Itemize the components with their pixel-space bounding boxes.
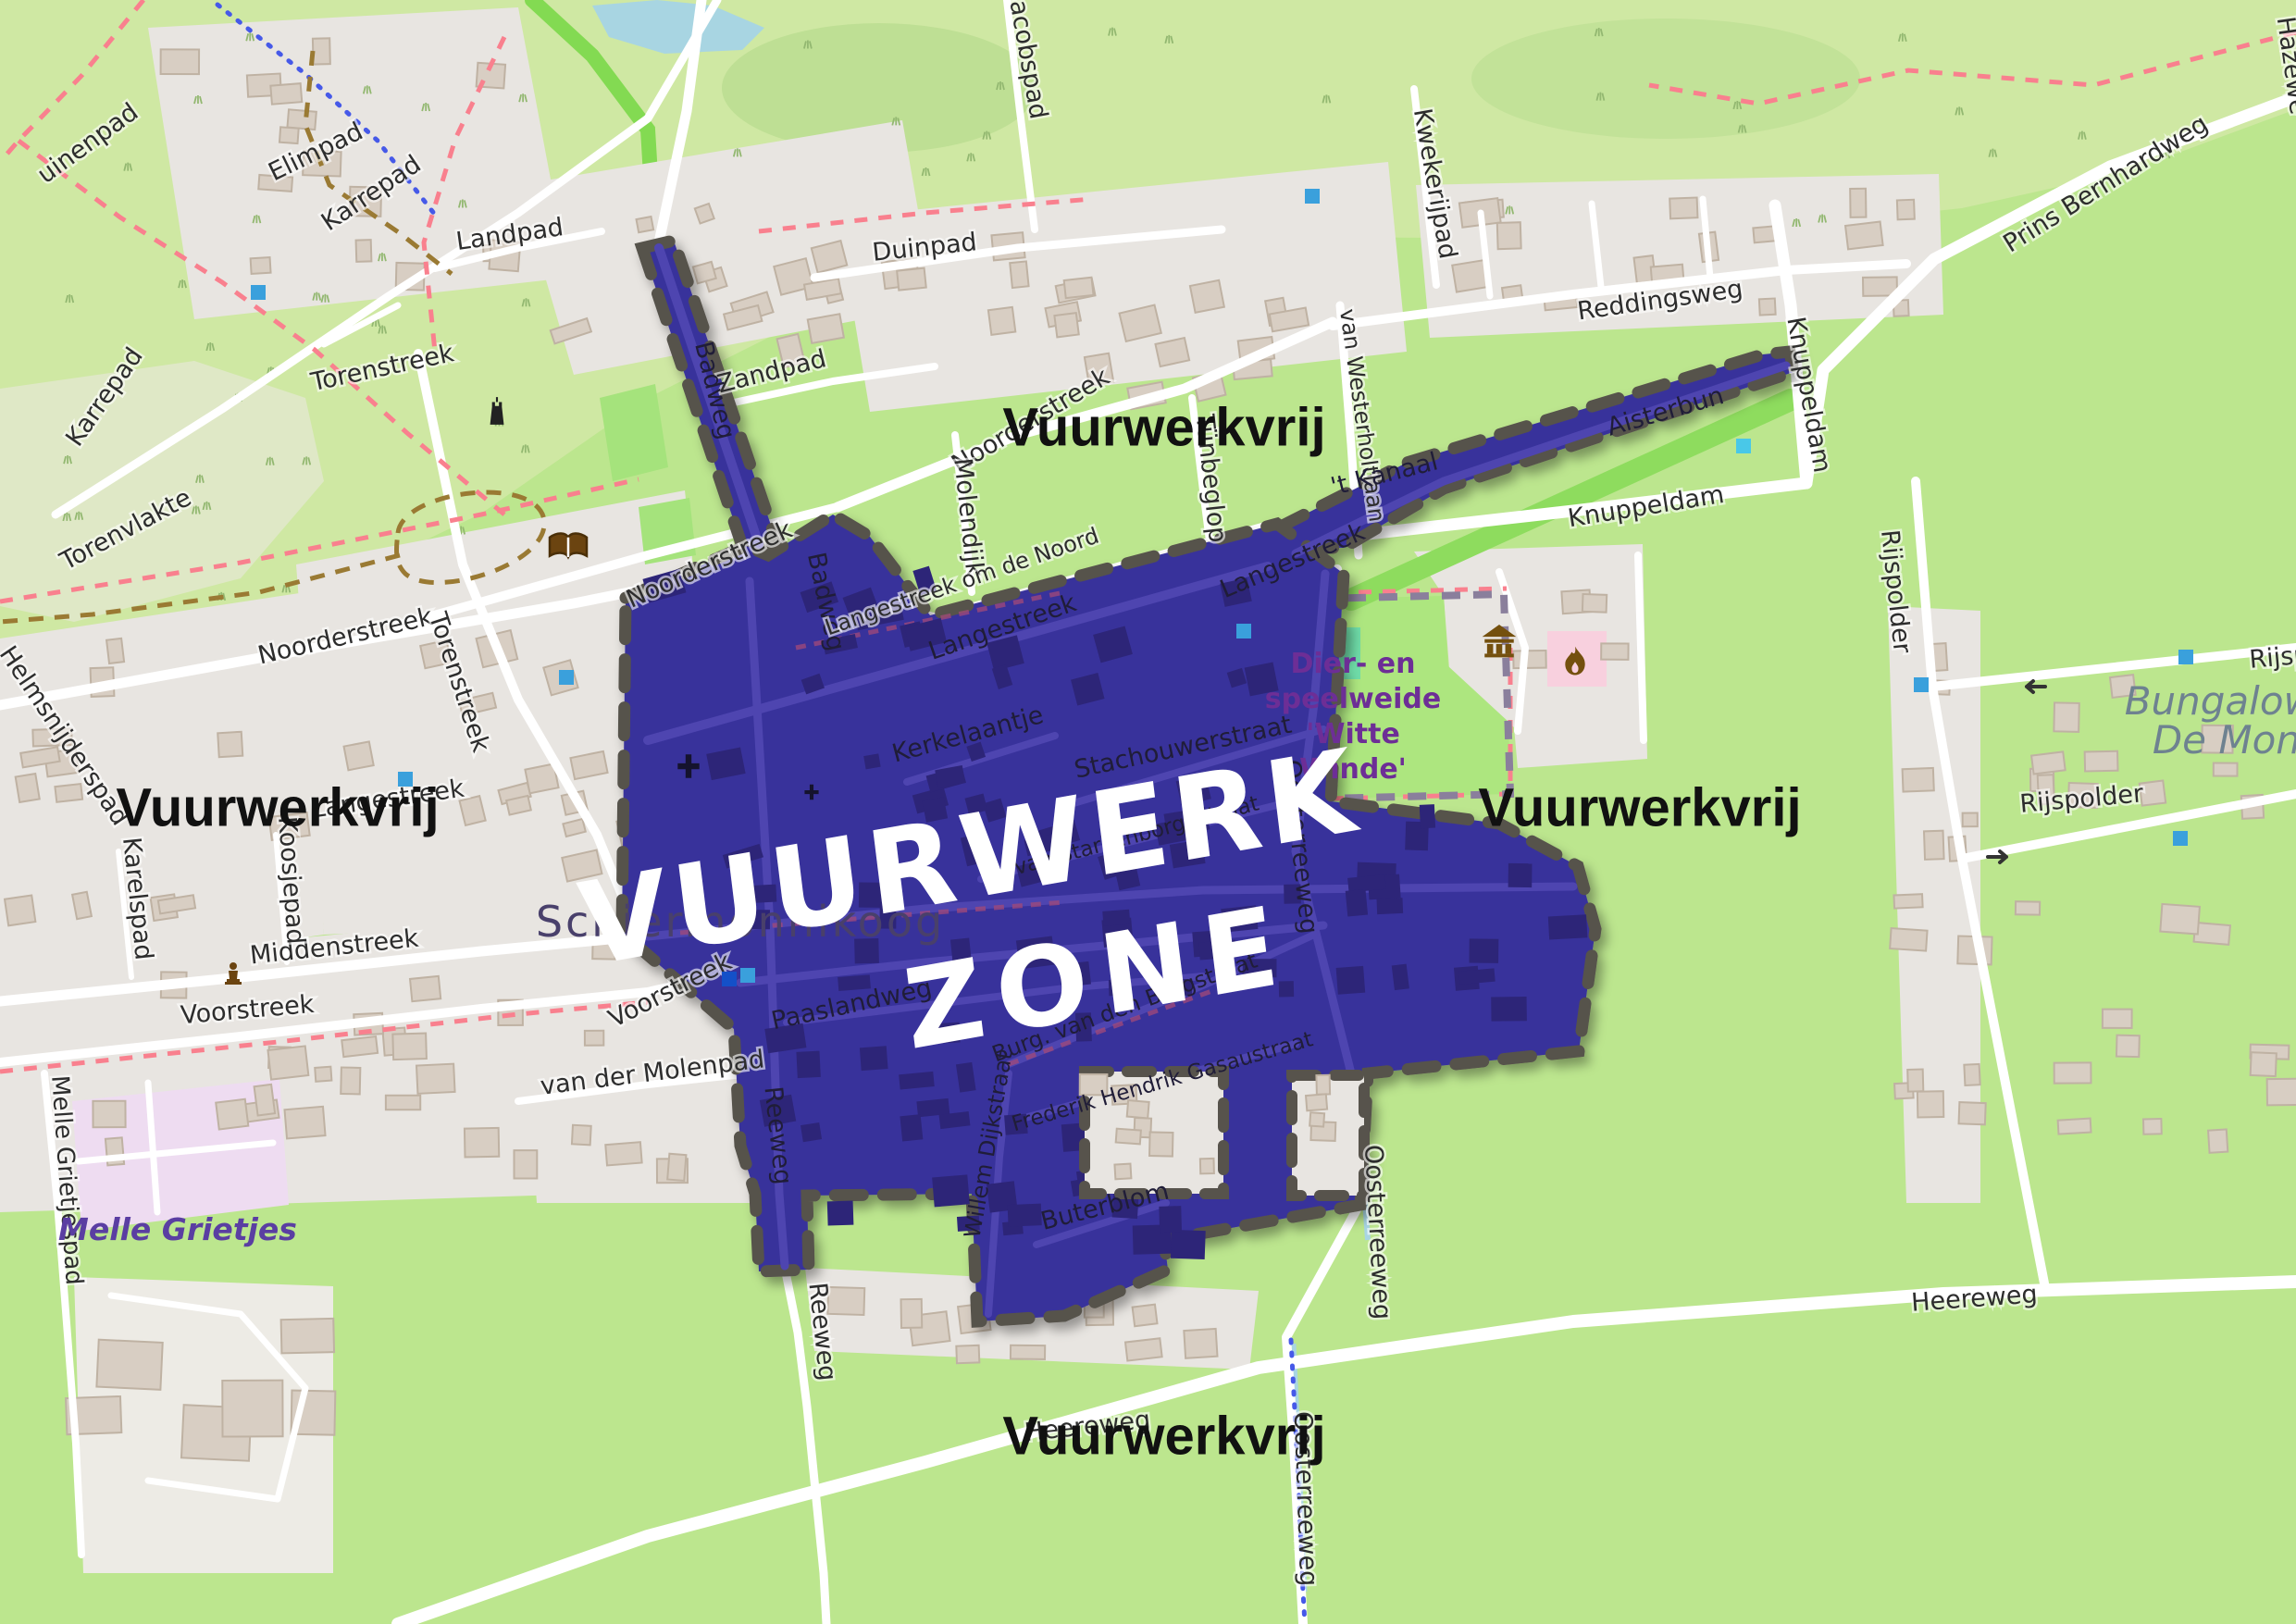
building bbox=[585, 1031, 603, 1046]
grass-icon bbox=[522, 298, 529, 306]
building bbox=[1190, 280, 1224, 313]
building bbox=[1850, 189, 1866, 217]
building bbox=[1054, 313, 1078, 337]
map-marker bbox=[251, 285, 266, 300]
building bbox=[1316, 1075, 1330, 1095]
grass-icon bbox=[364, 85, 371, 93]
grass-icon bbox=[196, 475, 204, 483]
grass-icon bbox=[64, 455, 71, 464]
building bbox=[1959, 1102, 1986, 1124]
building bbox=[1376, 898, 1403, 914]
building bbox=[1924, 831, 1944, 860]
map-marker bbox=[2173, 831, 2188, 846]
building bbox=[2054, 702, 2079, 732]
building bbox=[2016, 901, 2040, 914]
building bbox=[106, 638, 124, 663]
building bbox=[222, 1381, 282, 1437]
building bbox=[96, 1340, 162, 1390]
building bbox=[1513, 651, 1545, 668]
grass-icon bbox=[1165, 35, 1173, 43]
grass-icon bbox=[321, 294, 329, 303]
area-label-line: speelweide bbox=[1265, 683, 1441, 715]
building bbox=[1582, 594, 1607, 613]
building bbox=[356, 240, 372, 262]
grass-icon bbox=[206, 342, 214, 351]
building bbox=[2054, 1062, 2091, 1083]
grass-icon bbox=[124, 163, 131, 171]
building bbox=[572, 1125, 591, 1146]
building bbox=[5, 896, 35, 926]
building bbox=[251, 257, 271, 274]
grass-icon bbox=[1818, 215, 1826, 223]
building bbox=[900, 1114, 923, 1141]
building bbox=[2267, 1079, 2296, 1106]
grass-icon bbox=[313, 292, 320, 301]
vuurwerkvrij-label-left: Vuurwerkvrij bbox=[116, 777, 439, 839]
building bbox=[1903, 768, 1934, 792]
building bbox=[808, 314, 844, 343]
building bbox=[2116, 1035, 2140, 1057]
building bbox=[55, 784, 82, 802]
building bbox=[1133, 1305, 1158, 1327]
building bbox=[605, 1142, 641, 1165]
building bbox=[932, 1174, 970, 1207]
building bbox=[1171, 1230, 1206, 1259]
map-marker bbox=[1236, 624, 1251, 638]
building bbox=[1125, 1338, 1162, 1360]
book-icon bbox=[550, 534, 587, 557]
building bbox=[416, 1064, 455, 1094]
grass-icon bbox=[2079, 131, 2086, 140]
building bbox=[1008, 1204, 1042, 1227]
grass-icon bbox=[1739, 124, 1746, 132]
grass-icon bbox=[459, 199, 466, 207]
building bbox=[2085, 751, 2118, 772]
building bbox=[667, 1154, 686, 1181]
building bbox=[465, 1128, 499, 1158]
grass-icon bbox=[246, 32, 254, 41]
grass-icon bbox=[734, 148, 741, 156]
building bbox=[2214, 763, 2238, 776]
building bbox=[1601, 643, 1628, 660]
building bbox=[315, 1067, 331, 1082]
building bbox=[287, 109, 316, 130]
map-marker bbox=[2178, 650, 2193, 664]
building bbox=[1907, 1069, 1923, 1091]
grass-icon bbox=[1109, 28, 1116, 36]
grass-icon bbox=[1595, 28, 1603, 36]
building bbox=[341, 1036, 378, 1057]
area-label-line: Melle Grietjes bbox=[58, 1211, 297, 1247]
grass-icon bbox=[997, 81, 1004, 90]
building bbox=[217, 732, 242, 757]
grass-icon bbox=[983, 131, 990, 140]
building bbox=[1669, 198, 1697, 219]
map-marker bbox=[1914, 677, 1929, 692]
building bbox=[279, 127, 299, 143]
grass-icon bbox=[267, 457, 274, 465]
building bbox=[693, 262, 716, 283]
building bbox=[2160, 904, 2200, 935]
building bbox=[1420, 804, 1435, 828]
building bbox=[1548, 914, 1588, 939]
grass-icon bbox=[75, 512, 82, 520]
grass-icon bbox=[967, 153, 974, 161]
building bbox=[897, 268, 926, 291]
building bbox=[1184, 1329, 1217, 1358]
building bbox=[410, 976, 441, 1001]
area-label-line: Dier- en bbox=[1291, 648, 1416, 680]
building bbox=[2031, 751, 2066, 774]
grass-icon bbox=[379, 253, 386, 261]
vuurwerkvrij-label-right: Vuurwerkvrij bbox=[1478, 777, 1801, 839]
building bbox=[1845, 222, 1883, 250]
building bbox=[863, 753, 880, 769]
building bbox=[93, 1101, 125, 1128]
grass-icon bbox=[519, 93, 527, 102]
building bbox=[514, 1150, 537, 1178]
building bbox=[392, 1034, 427, 1060]
map-marker bbox=[559, 670, 574, 685]
building bbox=[956, 1345, 979, 1363]
grass-icon bbox=[1506, 205, 1513, 214]
grass-icon bbox=[1322, 94, 1330, 103]
building bbox=[1149, 1132, 1173, 1156]
building bbox=[1897, 200, 1915, 220]
building bbox=[281, 1319, 334, 1353]
area-label: Melle Grietjes bbox=[58, 1211, 297, 1247]
area-label-line: De Monni bbox=[2153, 717, 2296, 762]
vuurwerkvrij-label-bottom: Vuurwerkvrij bbox=[1002, 1406, 1325, 1468]
grass-icon bbox=[179, 279, 186, 288]
building bbox=[267, 1046, 308, 1079]
building bbox=[1011, 1345, 1045, 1359]
building bbox=[1469, 938, 1498, 963]
grass-icon bbox=[253, 215, 260, 223]
building bbox=[1508, 863, 1533, 887]
building bbox=[2208, 1129, 2228, 1152]
map-marker bbox=[740, 968, 755, 983]
grass-icon bbox=[1989, 149, 1996, 157]
building bbox=[1159, 1206, 1182, 1233]
building bbox=[1064, 278, 1094, 298]
building bbox=[344, 741, 374, 770]
building bbox=[1893, 894, 1922, 908]
building bbox=[1491, 997, 1527, 1022]
building bbox=[2103, 1010, 2132, 1028]
building bbox=[1917, 1091, 1943, 1117]
map-marker bbox=[1736, 439, 1751, 453]
grass-icon bbox=[923, 167, 930, 176]
building bbox=[1309, 1112, 1324, 1126]
grass-icon bbox=[522, 444, 529, 452]
building bbox=[901, 1299, 923, 1328]
grass-icon bbox=[379, 325, 386, 333]
building bbox=[1200, 1159, 1214, 1173]
building bbox=[800, 1122, 822, 1142]
grass-icon bbox=[1899, 33, 1906, 42]
building bbox=[796, 1051, 820, 1078]
building bbox=[1452, 260, 1488, 291]
grass-icon bbox=[1596, 93, 1604, 101]
grass-icon bbox=[892, 117, 900, 125]
building bbox=[1306, 1094, 1327, 1110]
grass-icon bbox=[1793, 218, 1800, 227]
building bbox=[1497, 222, 1521, 249]
building bbox=[860, 1046, 888, 1071]
building bbox=[1346, 889, 1368, 917]
building bbox=[1964, 1064, 1980, 1085]
building bbox=[1116, 1129, 1141, 1145]
building bbox=[16, 774, 40, 802]
building bbox=[2143, 1119, 2162, 1134]
building bbox=[270, 83, 302, 105]
grass-icon bbox=[1955, 106, 1963, 115]
building bbox=[1759, 298, 1776, 315]
grass-icon bbox=[1733, 101, 1741, 109]
grass-icon bbox=[194, 95, 202, 104]
grass-icon bbox=[804, 41, 812, 49]
map-poster: Schiermonnikoog uinenpadElimpadKarrepadK… bbox=[0, 0, 2296, 1624]
building bbox=[161, 49, 199, 74]
building bbox=[1890, 928, 1927, 951]
building bbox=[284, 1107, 325, 1139]
building bbox=[254, 1085, 276, 1116]
grass-icon bbox=[422, 103, 429, 111]
map-marker bbox=[722, 972, 737, 986]
building bbox=[1010, 261, 1028, 288]
building bbox=[1155, 338, 1189, 366]
building bbox=[1336, 966, 1366, 995]
building bbox=[216, 1099, 248, 1130]
building bbox=[386, 1096, 420, 1110]
grass-icon bbox=[203, 502, 210, 510]
vuurwerkvrij-label-top: Vuurwerkvrij bbox=[1002, 397, 1325, 459]
building bbox=[1963, 813, 1978, 827]
grass-icon bbox=[66, 294, 73, 303]
map-marker bbox=[1305, 189, 1320, 204]
building bbox=[341, 1068, 360, 1095]
grass-icon bbox=[303, 456, 310, 465]
building bbox=[637, 217, 654, 232]
building bbox=[1114, 1164, 1131, 1180]
building bbox=[2058, 1119, 2091, 1134]
building bbox=[1392, 964, 1409, 991]
building bbox=[2251, 1052, 2277, 1076]
building bbox=[827, 1201, 854, 1226]
building bbox=[988, 307, 1015, 335]
building bbox=[313, 38, 330, 64]
